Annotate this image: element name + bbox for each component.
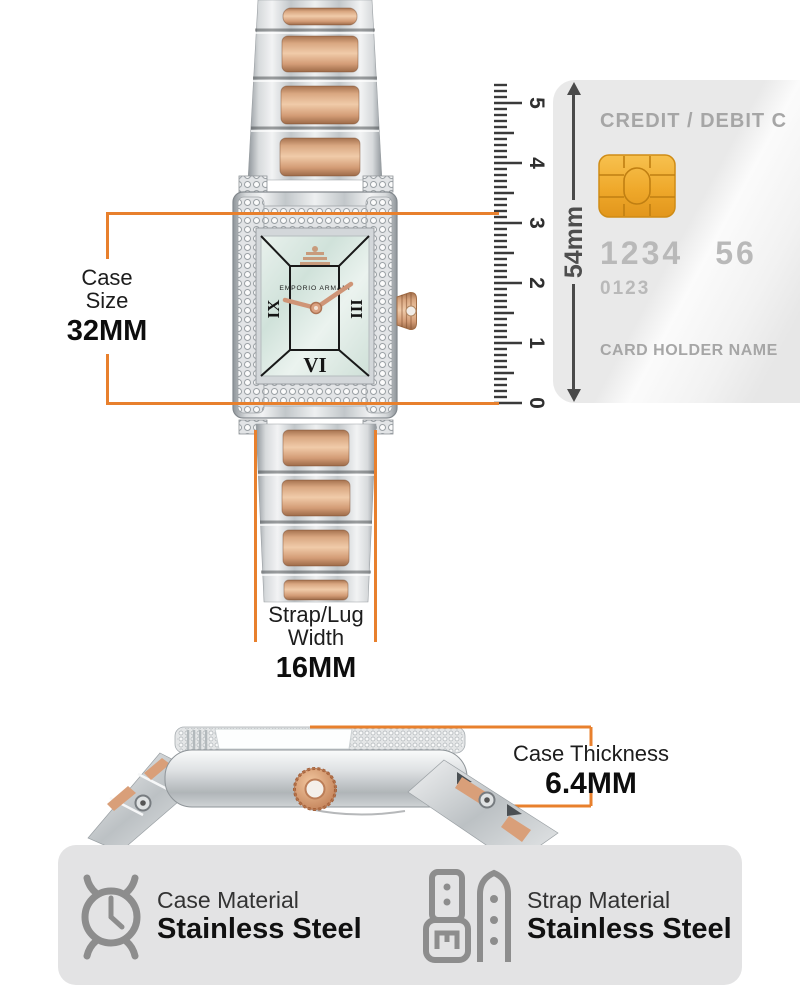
case-thickness-value: 6.4MM [501,768,681,800]
strap-width-value: 16MM [236,652,396,684]
dial-numeral-right: III [347,299,366,319]
ruler-label-3: 3 [525,210,547,236]
watch-case: EMPORIO ARMANI IX III VI [233,192,417,418]
credit-card-number: 123456 [600,235,757,272]
ruler [492,72,562,412]
card-height-arrow-bottom [572,284,575,390]
side-crown [295,769,336,810]
ruler-label-2: 2 [525,270,547,296]
case-size-line-bottom [107,402,499,405]
credit-card-illustration: CREDIT / DEBIT C 123456 0123 CARD HOLDER… [553,80,800,403]
watch-case-icon [78,873,144,961]
credit-card-chip-icon [598,154,676,218]
materials-panel: Case Material Stainless Steel Strap Mate… [58,845,742,985]
case-size-label-line1: Case [37,266,177,289]
strap-width-annotation: Strap/Lug Width 16MM [236,603,396,684]
strap-icon [422,869,518,965]
case-size-bracket-upper [106,212,109,259]
case-material-label: Case Material [157,887,299,914]
case-size-label-line2: Size [37,289,177,312]
strap-width-label-line1: Strap/Lug [236,603,396,626]
bracelet-bottom [239,420,393,602]
case-size-line-top [107,212,499,215]
case-size-annotation: Case Size 32MM [37,266,177,347]
credit-card-holder-label: CARD HOLDER NAME [600,342,778,360]
case-thickness-label: Case Thickness [501,742,681,765]
bracelet-top [239,0,393,192]
card-number-group-2: 56 [715,235,757,271]
dial-numeral-left: IX [264,299,283,319]
case-material-value: Stainless Steel [157,913,362,946]
watch-crown [397,292,417,329]
strap-material-label: Strap Material [527,887,670,914]
card-height-value: 54mm [561,197,587,287]
credit-card-secondary-number: 0123 [600,278,650,300]
ruler-label-4: 4 [525,150,547,176]
card-height-arrow-top [572,93,575,200]
card-number-group-1: 1234 [600,235,683,271]
strap-material-value: Stainless Steel [527,913,732,946]
case-size-value: 32MM [37,315,177,347]
ruler-label-0: 0 [525,390,547,416]
product-infographic: CREDIT / DEBIT C 123456 0123 CARD HOLDER… [0,0,800,1000]
ruler-label-5: 5 [525,90,547,116]
ruler-label-1: 1 [525,330,547,356]
case-thickness-annotation: Case Thickness 6.4MM [501,742,681,800]
strap-width-label-line2: Width [236,626,396,649]
ruler-ticks [494,85,522,403]
arrow-down-icon [567,389,581,402]
case-size-bracket-lower [106,354,109,405]
credit-card-title: CREDIT / DEBIT C [600,110,787,133]
dial-numeral-bottom: VI [303,353,326,377]
